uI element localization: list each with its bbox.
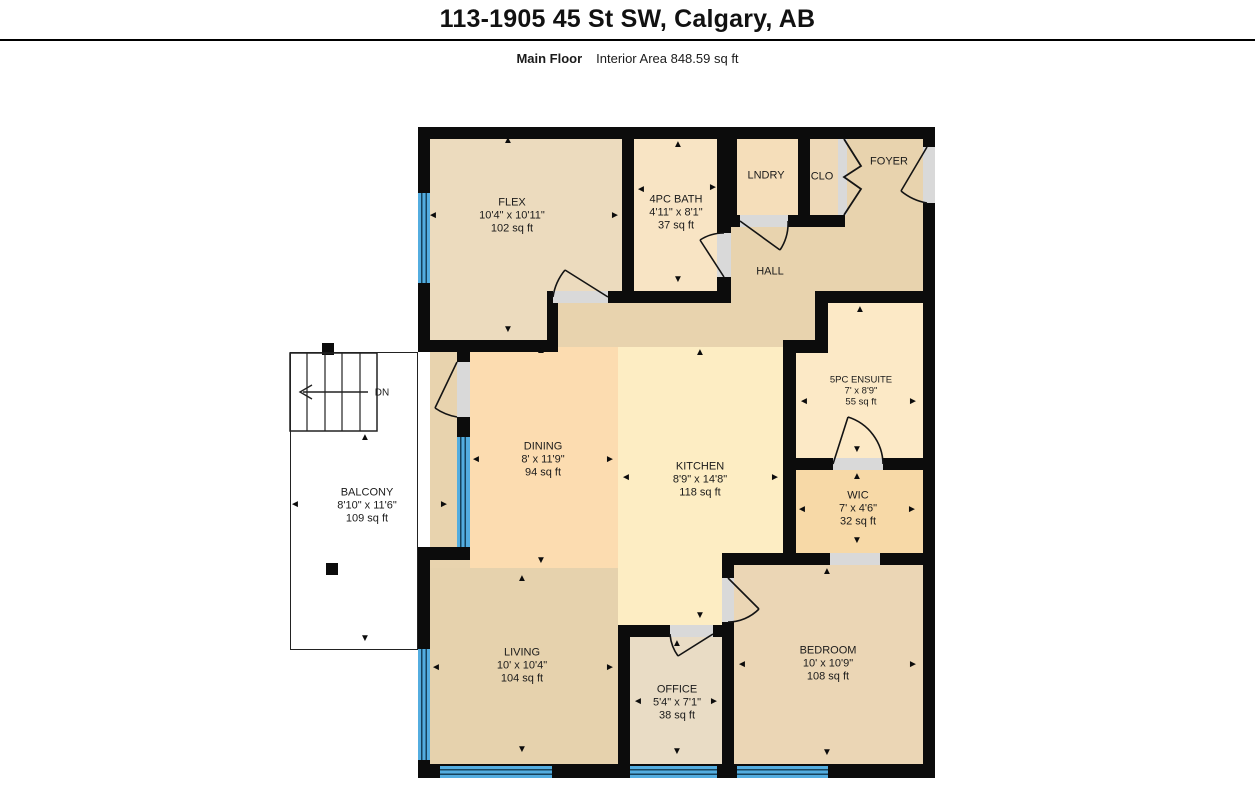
room-label-balcony: BALCONY 8'10" x 11'6" 109 sq ft (337, 487, 397, 526)
dim-arrow-right-icon (907, 505, 917, 515)
room-label-clo: CLO (811, 171, 834, 184)
dim-arrow-left-icon (621, 473, 631, 483)
staircase (290, 353, 377, 431)
room-label-hall: HALL (756, 266, 784, 279)
dim-arrow-left-icon (428, 211, 438, 221)
room-label-living: LIVING 10' x 10'4" 104 sq ft (497, 647, 547, 686)
dim-arrow-up-icon (852, 472, 862, 482)
room-label-bath: 4PC BATH 4'11" x 8'1" 37 sq ft (649, 194, 702, 233)
dim-arrow-up-icon (822, 567, 832, 577)
dim-arrow-left-icon (799, 397, 809, 407)
room-label-flex: FLEX 10'4" x 10'11" 102 sq ft (479, 197, 545, 236)
dim-arrow-left-icon (431, 663, 441, 673)
dim-arrow-left-icon (290, 500, 300, 510)
room-label-wic: WIC 7' x 4'6" 32 sq ft (839, 490, 877, 529)
dim-arrow-right-icon (605, 455, 615, 465)
stair-direction-arrow-icon (300, 385, 368, 399)
door-swing-balcony (435, 362, 457, 417)
room-label-ensuite: 5PC ENSUITE 7' x 8'9" 55 sq ft (830, 375, 892, 408)
room-label-bedroom: BEDROOM 10' x 10'9" 108 sq ft (800, 645, 857, 684)
dim-arrow-down-icon (536, 556, 546, 566)
dim-arrow-down-icon (852, 445, 862, 455)
dim-arrow-up-icon (672, 639, 682, 649)
dim-arrow-up-icon (536, 346, 546, 356)
dim-arrow-right-icon (770, 473, 780, 483)
room-label-office: OFFICE 5'4" x 7'1" 38 sq ft (653, 684, 701, 723)
dim-arrow-down-icon (503, 325, 513, 335)
dim-arrow-up-icon (503, 136, 513, 146)
dim-arrow-up-icon (673, 140, 683, 150)
dim-arrow-up-icon (855, 305, 865, 315)
dim-arrow-down-icon (672, 747, 682, 757)
dim-arrow-left-icon (797, 505, 807, 515)
dim-arrow-right-icon (708, 183, 718, 193)
dim-arrow-left-icon (633, 697, 643, 707)
dim-arrow-right-icon (610, 211, 620, 221)
door-swing-flex (553, 270, 608, 297)
dim-arrow-up-icon (517, 574, 527, 584)
room-label-kitchen: KITCHEN 8'9" x 14'8" 118 sq ft (673, 461, 727, 500)
dim-arrow-right-icon (439, 500, 449, 510)
dim-arrow-left-icon (636, 185, 646, 195)
door-swing-and-stairs-layer (0, 0, 1255, 787)
dim-arrow-down-icon (517, 745, 527, 755)
dim-arrow-down-icon (360, 634, 370, 644)
dim-arrow-right-icon (605, 663, 615, 673)
dim-arrow-up-icon (360, 433, 370, 443)
bifold-door-closet (844, 139, 861, 215)
room-label-foyer: FOYER (870, 156, 908, 169)
room-label-lndry: LNDRY (747, 170, 784, 183)
dim-arrow-down-icon (695, 611, 705, 621)
dim-arrow-right-icon (908, 660, 918, 670)
dim-arrow-down-icon (852, 536, 862, 546)
dim-arrow-right-icon (908, 397, 918, 407)
door-swing-lndry (740, 221, 788, 250)
door-swing-ensuite (833, 417, 883, 464)
door-swing-bath (700, 233, 724, 277)
dim-arrow-right-icon (709, 697, 719, 707)
dim-arrow-left-icon (737, 660, 747, 670)
dim-arrow-down-icon (822, 748, 832, 758)
room-label-dining: DINING 8' x 11'9" 94 sq ft (521, 441, 564, 480)
dim-arrow-down-icon (673, 275, 683, 285)
dim-arrow-left-icon (471, 455, 481, 465)
floorplan-page: 113-1905 45 St SW, Calgary, AB Main Floo… (0, 0, 1255, 787)
door-swing-bedroom (728, 578, 759, 622)
dim-arrow-up-icon (695, 348, 705, 358)
stairs-down-label: DN (375, 387, 389, 400)
